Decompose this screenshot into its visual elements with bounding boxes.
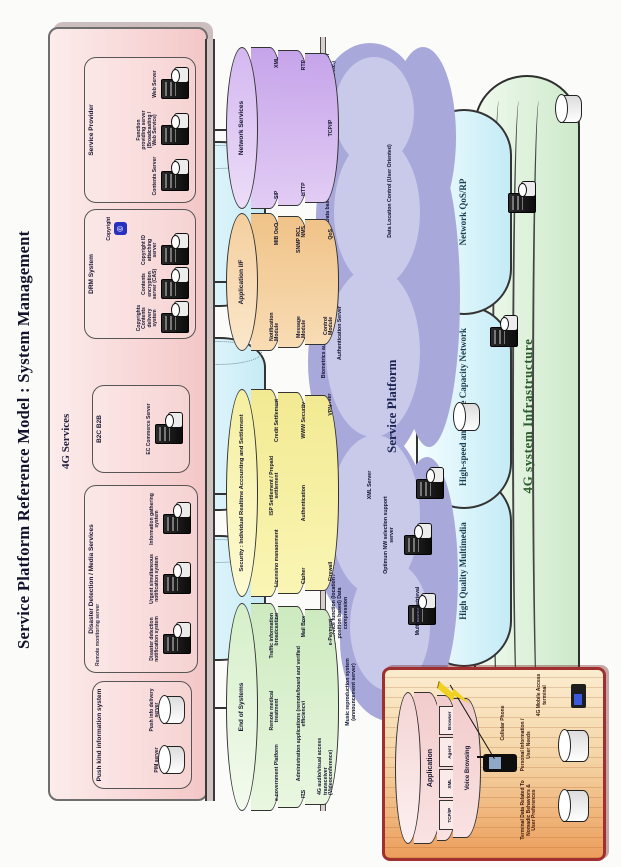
page-title: Service Platform Reference Model : Syste… <box>14 49 34 649</box>
server-item: Contents encryption server (CAS) <box>142 268 189 300</box>
b2c-b2b-box: B2C B2B EC Commerce Server <box>92 385 190 473</box>
server-icon <box>161 267 189 301</box>
server-item: PIM server <box>155 736 185 784</box>
box-title: Disaster Detection / Media Services <box>85 486 95 672</box>
server-icon <box>161 67 189 101</box>
box-title: B2C B2B <box>93 386 103 472</box>
server-item: Copyrights Contents delivery system <box>137 302 189 334</box>
server-item: EC Commerce Server <box>147 390 183 468</box>
database-cylinder-icon <box>563 790 589 822</box>
stack-security-accounting: Security : Individual Realtime Accountin… <box>226 389 339 597</box>
copyright-group: Copyright © <box>107 217 127 241</box>
service-bus-line <box>205 39 215 801</box>
terminal-data-label: Terminal Data Related To Nomadic Behavio… <box>521 778 538 842</box>
data-location-note: Data Location Control (User Oriented) <box>388 141 394 241</box>
server-icon <box>404 523 432 557</box>
stack-title: Network Services <box>226 47 258 209</box>
server-icon <box>508 181 536 215</box>
access-module-label: 4G Mobile Access terminal <box>537 672 548 718</box>
services-panel-label: 4G Services <box>60 414 72 469</box>
box-title: Push kind information system <box>93 682 103 788</box>
xml-server-label: XML Server <box>368 453 374 517</box>
personal-info-label: Personal Information / User Needs <box>521 716 532 774</box>
server-icon <box>163 562 191 596</box>
copyright-icon: © <box>114 222 127 235</box>
server-icon <box>161 159 189 193</box>
service-provider-box: Service Provider Contents Server Functio… <box>84 57 196 203</box>
stack-top <box>395 692 421 844</box>
server-icon <box>161 113 189 147</box>
server-item: Web Server <box>153 62 189 106</box>
server-item: Contents Server <box>153 154 189 198</box>
cellular-phone-icon <box>483 754 517 772</box>
box-title: Service Provider <box>85 58 95 202</box>
database-cylinder-icon <box>163 696 185 724</box>
cellular-phone-label: Cellular Phone <box>501 696 507 750</box>
infrastructure-label: 4G system Infrastructure <box>520 77 536 755</box>
stack-end-of-systems: End of Systems e-government PlatformRemo… <box>226 603 339 811</box>
server-icon <box>416 467 444 501</box>
rotated-diagram-canvas: Service Platform Reference Model : Syste… <box>0 0 621 867</box>
database-cylinder-icon <box>458 403 480 431</box>
server-item: Information gathering system <box>150 490 191 548</box>
stack-network-services: Network Services SIPXML HTTPRTP TCP/IP <box>226 47 339 209</box>
stack-title: Application I/F <box>226 213 258 351</box>
server-item: Push info delivery server <box>150 686 185 734</box>
database-cylinder-icon <box>560 95 582 123</box>
database-cylinder-icon <box>563 730 589 762</box>
optimum-nw-label: Optimum NW selection support server <box>384 491 396 579</box>
drm-system-box: DRM System Copyright © Copyrights Conten… <box>84 209 196 339</box>
service-platform-label: Service Platform <box>384 360 400 453</box>
stack-title: Security : Individual Realtime Accountin… <box>226 389 258 597</box>
stack-application-if: Application I/F Notification ModuleMIB Q… <box>226 213 339 351</box>
database-cylinder-icon <box>163 746 185 774</box>
box-title: DRM System <box>85 210 95 338</box>
server-icon <box>161 233 189 267</box>
terminal-box: Application TCP/IP XML Agent Browser Voi… <box>382 667 606 861</box>
cloud-shape <box>334 57 414 167</box>
server-item: Function providing server (Broadcasting … <box>137 108 189 152</box>
multimedia-retrieval-label: Multimedia retrieval <box>416 569 422 653</box>
server-item: Urgent simultaneous notification system <box>150 550 191 608</box>
access-device-icon <box>571 684 586 708</box>
music-system-label: Music reproduction system (announcement … <box>346 655 358 729</box>
stack-title: End of Systems <box>226 603 258 811</box>
server-item: Disaster detection notification system <box>150 610 191 668</box>
push-info-box: Push kind information system PIM server … <box>92 681 192 789</box>
server-icon <box>161 301 189 335</box>
server-icon <box>155 412 183 446</box>
server-icon <box>490 315 518 349</box>
server-item: Copyright ID attaching server <box>142 234 189 266</box>
server-icon <box>163 622 191 656</box>
disaster-detection-box: Disaster Detection / Media Services Remo… <box>84 485 198 673</box>
server-icon <box>408 593 436 627</box>
server-icon <box>163 502 191 536</box>
